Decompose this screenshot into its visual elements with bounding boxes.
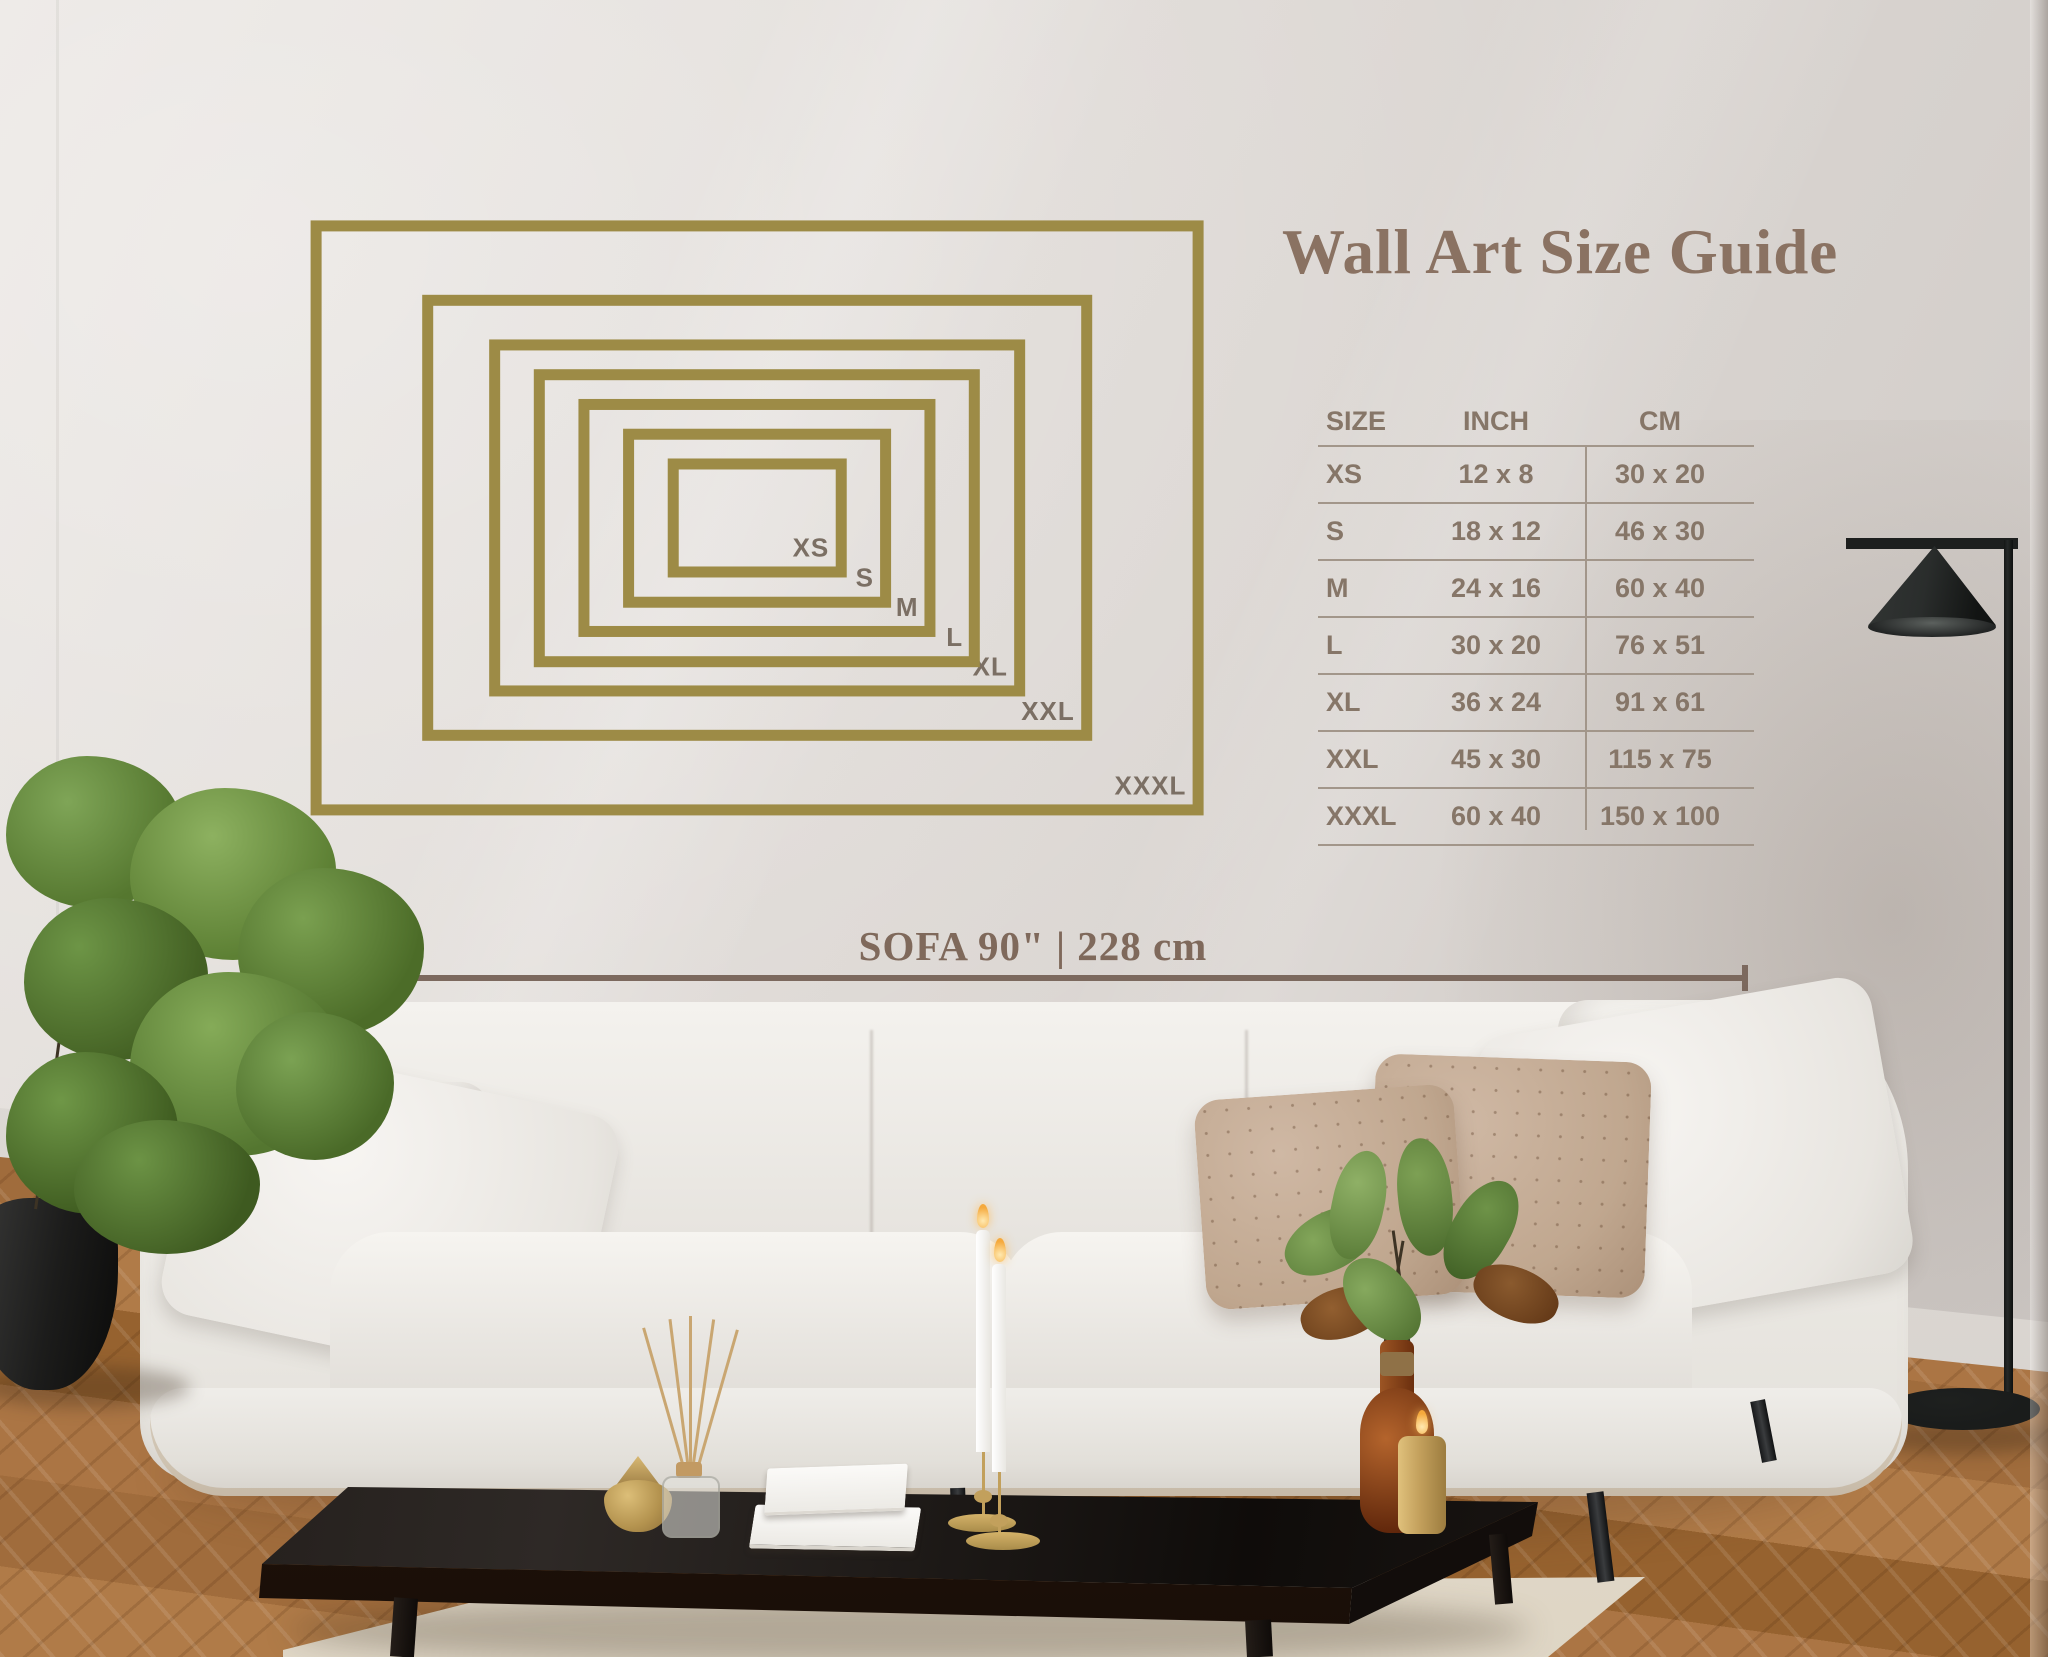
- wall-art-size-guide-scene: XXXLXXLXLLMSXS Wall Art Size Guide SIZEI…: [0, 0, 2048, 1657]
- diffuser-jar: [662, 1476, 720, 1538]
- amber-vase-band: [1380, 1352, 1414, 1376]
- taper-candle: [976, 1230, 990, 1452]
- candle-flame: [994, 1238, 1006, 1262]
- window-frame-edge: [2030, 0, 2048, 1657]
- candlestick-stem: [982, 1452, 985, 1518]
- gold-pillar-candle: [1398, 1436, 1446, 1534]
- candle-flame: [977, 1204, 989, 1228]
- book: [764, 1464, 908, 1516]
- candlestick-base: [966, 1532, 1040, 1550]
- diffuser-stick: [689, 1316, 692, 1468]
- candle-flame: [1416, 1410, 1428, 1434]
- candlestick-knot: [990, 1514, 1008, 1527]
- tabletop-items: [0, 0, 2048, 1657]
- taper-candle: [992, 1264, 1006, 1472]
- candlestick-knot: [974, 1490, 992, 1503]
